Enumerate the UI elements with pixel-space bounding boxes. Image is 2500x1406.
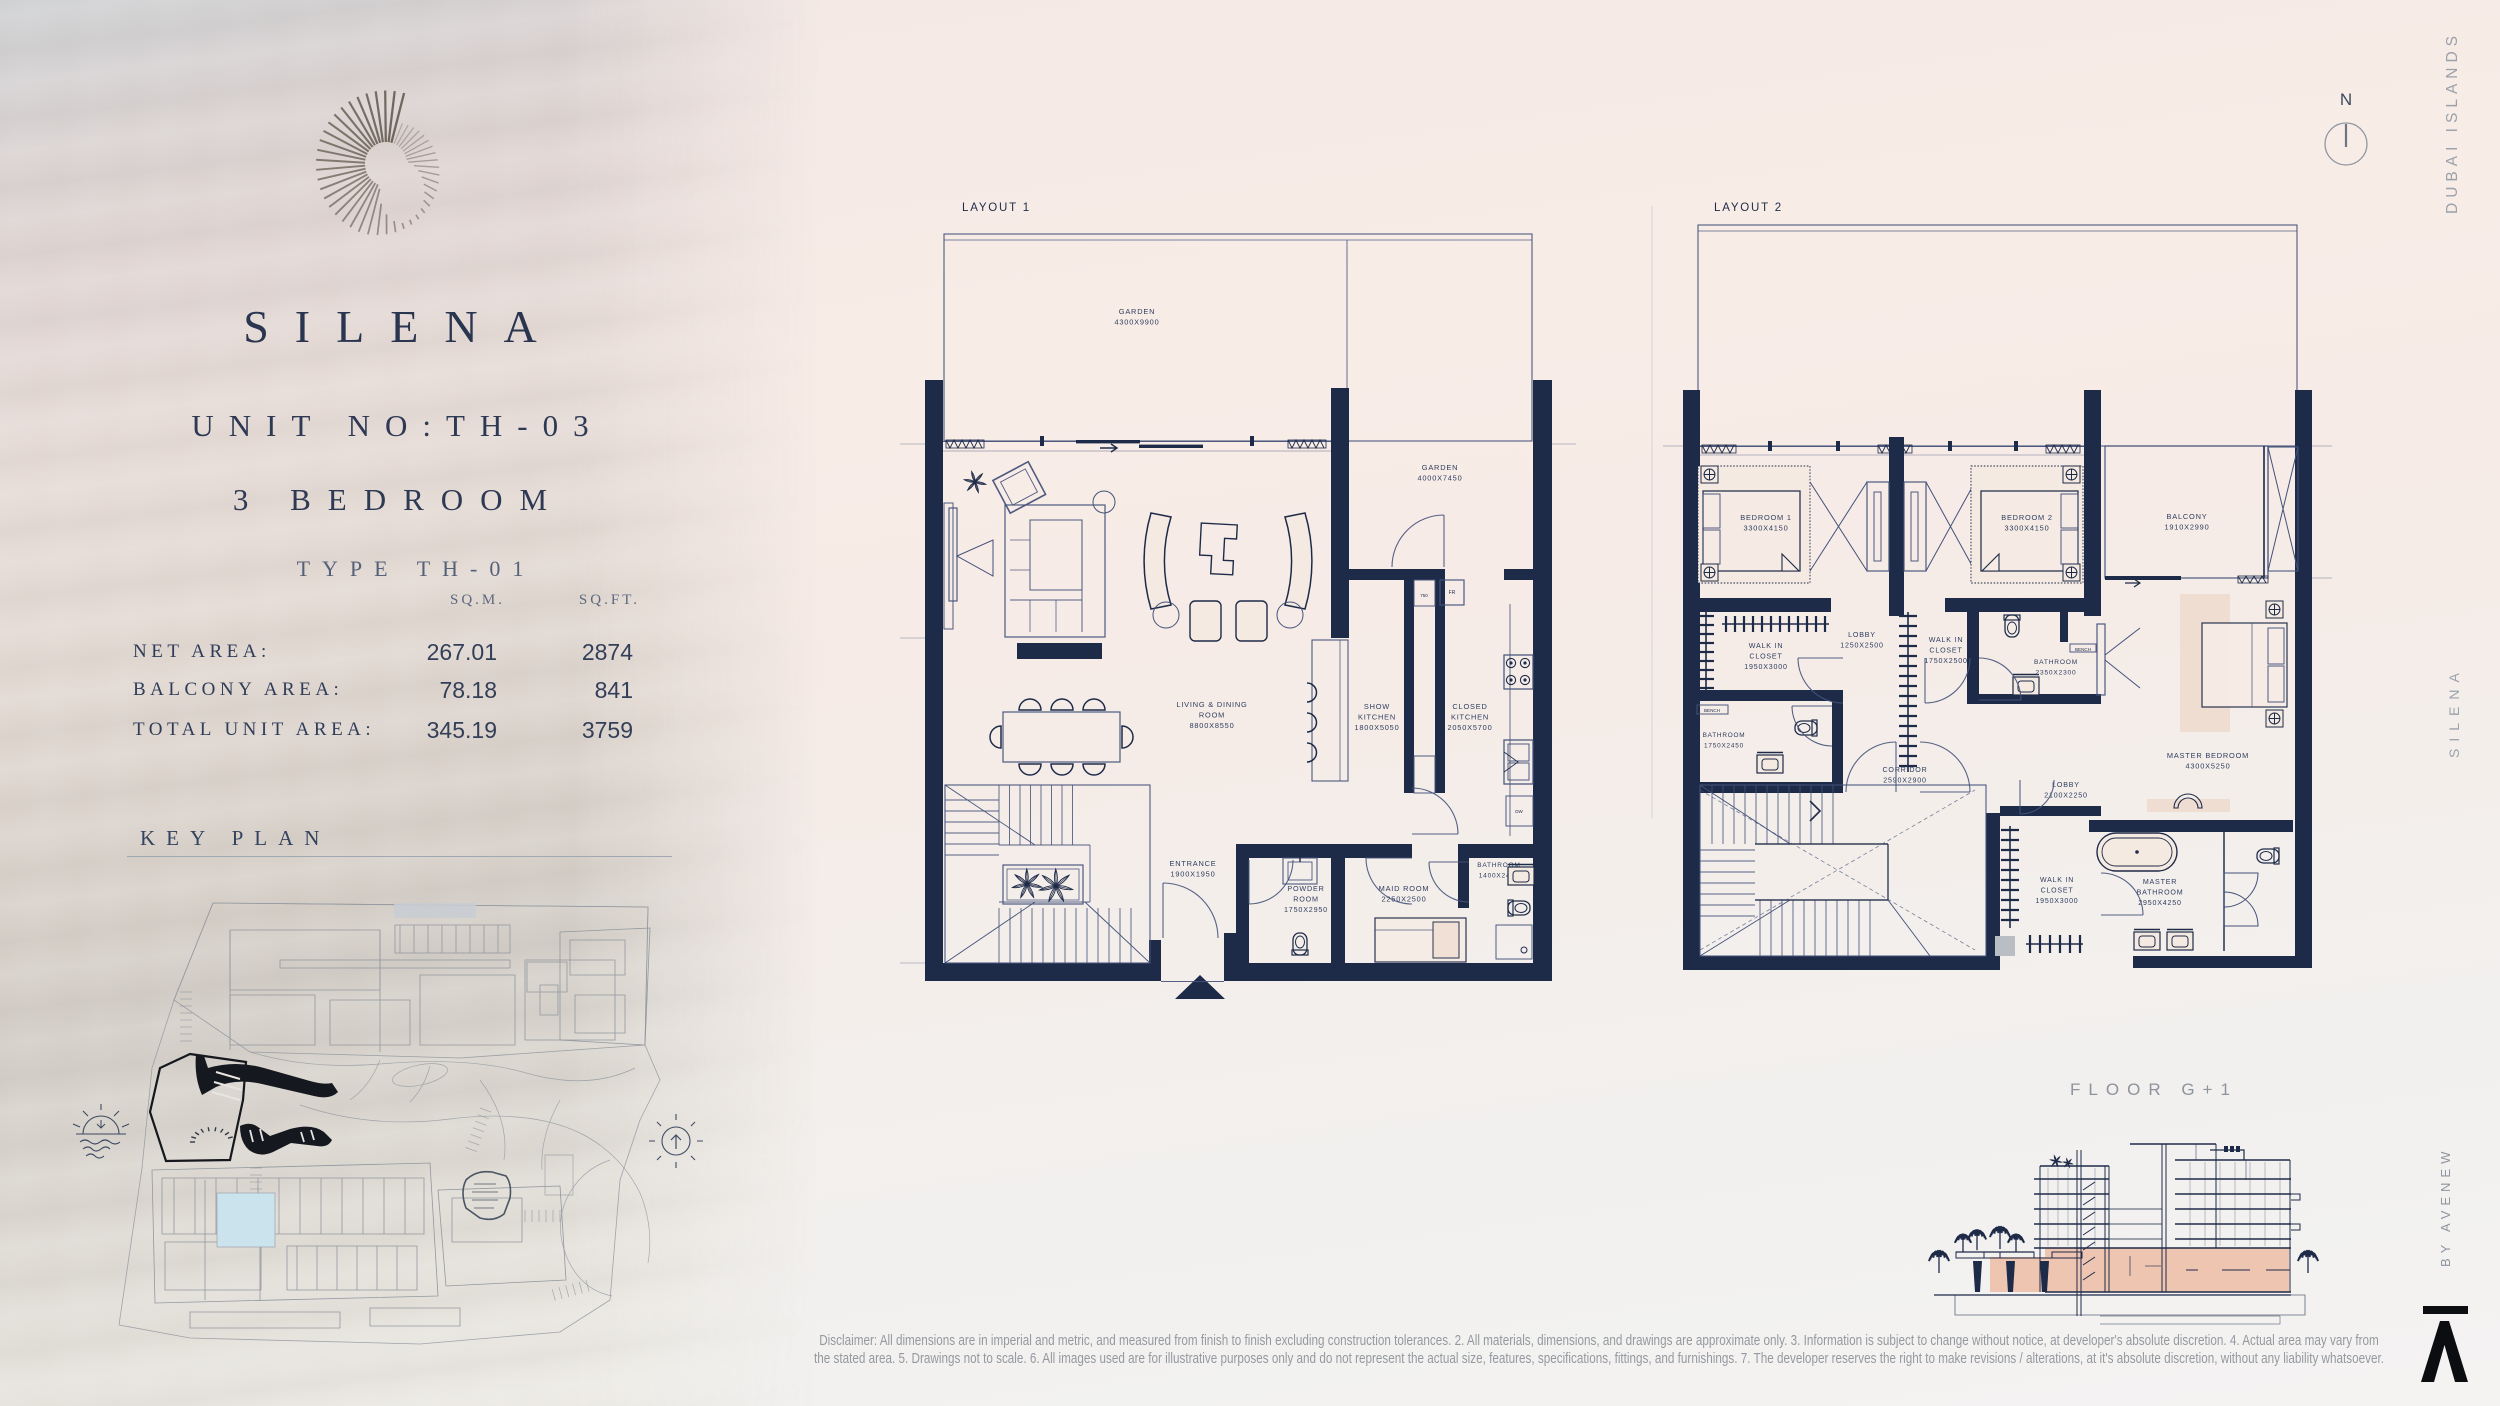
- svg-text:CLOSET: CLOSET: [1929, 647, 1962, 655]
- svg-text:LIVING & DINING: LIVING & DINING: [1176, 700, 1247, 709]
- svg-text:MASTER: MASTER: [2143, 878, 2177, 886]
- svg-text:BENCH: BENCH: [2075, 647, 2091, 652]
- svg-text:LAYOUT 1: LAYOUT 1: [962, 202, 1031, 214]
- svg-text:WALK IN: WALK IN: [2040, 877, 2074, 884]
- svg-text:3300X4150: 3300X4150: [1743, 524, 1788, 533]
- svg-text:KITCHEN: KITCHEN: [1358, 713, 1396, 722]
- svg-text:CORRIDOR: CORRIDOR: [1882, 766, 1927, 774]
- svg-text:CLOSET: CLOSET: [1749, 653, 1782, 661]
- svg-text:1250X2500: 1250X2500: [1840, 642, 1884, 650]
- svg-text:3300X4150: 3300X4150: [2004, 524, 2049, 533]
- svg-text:2050X5700: 2050X5700: [1447, 723, 1492, 732]
- svg-text:2590X2900: 2590X2900: [1883, 777, 1927, 785]
- svg-text:1910X2990: 1910X2990: [2164, 523, 2209, 532]
- svg-text:BATHROOM: BATHROOM: [2034, 659, 2078, 666]
- svg-text:MAID ROOM: MAID ROOM: [1379, 884, 1430, 893]
- svg-text:1950X3000: 1950X3000: [1744, 663, 1788, 671]
- svg-text:4000X7450: 4000X7450: [1417, 474, 1462, 483]
- svg-text:8800X8550: 8800X8550: [1189, 721, 1234, 730]
- svg-text:GARDEN: GARDEN: [1119, 307, 1155, 316]
- svg-text:GARDEN: GARDEN: [1422, 463, 1458, 472]
- svg-text:1750X2500: 1750X2500: [1924, 657, 1968, 665]
- svg-text:LAYOUT 2: LAYOUT 2: [1714, 202, 1783, 214]
- svg-text:1950X3000: 1950X3000: [2035, 898, 2078, 905]
- svg-text:ROOM: ROOM: [1293, 895, 1319, 904]
- svg-text:LOBBY: LOBBY: [1848, 631, 1876, 639]
- svg-text:2250X2500: 2250X2500: [1381, 895, 1426, 904]
- svg-text:BALCONY: BALCONY: [2167, 512, 2208, 521]
- svg-text:POWDER: POWDER: [1287, 884, 1324, 893]
- svg-text:BEDROOM 2: BEDROOM 2: [2001, 513, 2053, 522]
- svg-text:BATHROOM: BATHROOM: [2137, 889, 2184, 897]
- svg-text:ENTRANCE: ENTRANCE: [1169, 859, 1216, 868]
- svg-text:BENCH: BENCH: [1704, 708, 1720, 713]
- svg-text:BATHROOM: BATHROOM: [1703, 732, 1746, 739]
- svg-text:750: 750: [1420, 593, 1428, 598]
- svg-text:1900X1950: 1900X1950: [1170, 870, 1215, 879]
- svg-text:2350X2300: 2350X2300: [2036, 670, 2077, 677]
- svg-text:FR: FR: [1449, 590, 1456, 596]
- svg-text:MASTER BEDROOM: MASTER BEDROOM: [2167, 751, 2249, 760]
- svg-text:1750X2950: 1750X2950: [1284, 905, 1328, 914]
- svg-text:4300X9900: 4300X9900: [1114, 318, 1159, 327]
- svg-text:BEDROOM 1: BEDROOM 1: [1740, 513, 1792, 522]
- svg-text:1750X2450: 1750X2450: [1704, 743, 1744, 750]
- svg-text:DW: DW: [1515, 809, 1523, 814]
- svg-text:WALK IN: WALK IN: [1749, 642, 1784, 650]
- svg-text:N: N: [2340, 90, 2352, 109]
- svg-text:4300X5250: 4300X5250: [2185, 762, 2230, 771]
- svg-text:LOBBY: LOBBY: [2052, 781, 2080, 789]
- svg-text:1800X5050: 1800X5050: [1354, 723, 1399, 732]
- svg-text:KITCHEN: KITCHEN: [1451, 713, 1489, 722]
- svg-text:2950X4250: 2950X4250: [2138, 899, 2182, 907]
- svg-text:ROOM: ROOM: [1199, 711, 1225, 720]
- svg-text:CLOSED: CLOSED: [1452, 702, 1487, 711]
- svg-text:WALK IN: WALK IN: [1929, 636, 1964, 644]
- svg-text:SHOW: SHOW: [1364, 702, 1390, 711]
- svg-text:CLOSET: CLOSET: [2041, 888, 2074, 895]
